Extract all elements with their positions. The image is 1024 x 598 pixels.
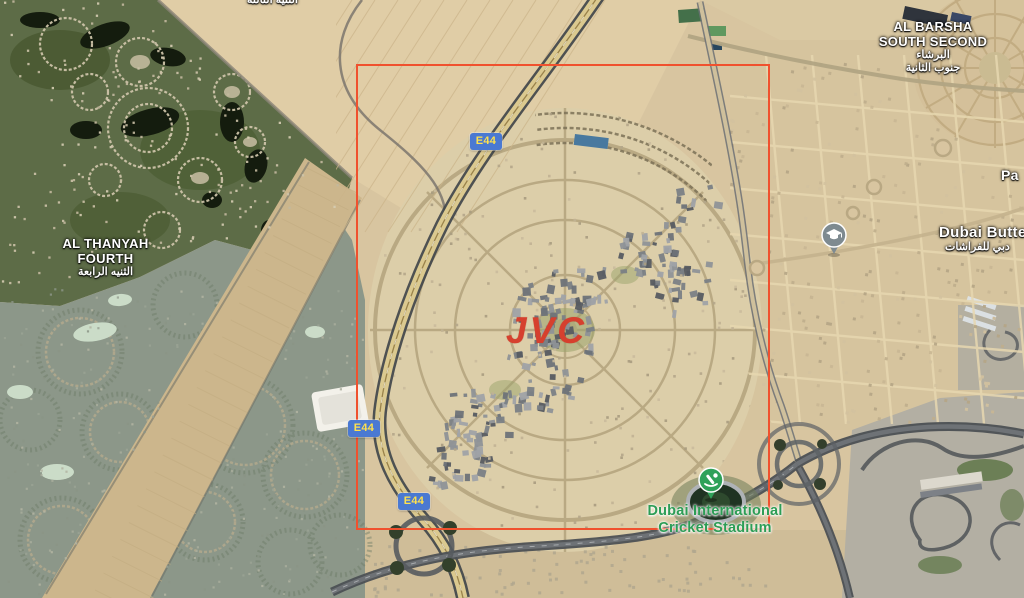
sports-pin-icon [696,466,726,502]
label-dubai-butterfly-garden[interactable]: Dubai Butter [939,224,1024,241]
label-line-arabic: الثنيه الثالثة [225,0,320,7]
label-line-arabic: الثنيه الرابعة [18,266,193,279]
satellite-map-viewport[interactable]: AL BARSHA SOUTH SECOND البرشاء جنوب الثا… [0,0,1024,598]
label-line: SOUTH SECOND [858,34,1008,49]
label-line: FOURTH [18,251,193,266]
label-line: AL BARSHA [858,19,1008,34]
jvc-annotation-text: JVC [506,310,587,352]
jvc-selection-rectangle [356,64,770,530]
label-right-edge-partial: Pa [1001,167,1019,183]
label-line-arabic: جنوب الثانية [858,62,1008,75]
school-pin[interactable] [819,221,849,262]
e44-route-badge: E44 [470,133,502,150]
label-al-barsha-south-second: AL BARSHA SOUTH SECOND البرشاء جنوب الثا… [858,19,1008,75]
label-line: AL THANYAH [18,236,193,251]
e44-route-badge: E44 [348,420,380,437]
cricket-stadium-pin[interactable] [696,466,726,507]
label-line: Cricket Stadium [614,520,816,537]
label-al-thanyah-fourth: AL THANYAH FOURTH الثنيه الرابعة [18,236,193,279]
label-cricket-stadium[interactable]: Dubai International Cricket Stadium [614,503,816,537]
label-line-arabic: البرشاء [858,49,1008,62]
label-dubai-butterfly-garden-arabic: دبي للفراشات [945,240,1010,253]
graduation-cap-icon [819,221,849,257]
e44-route-badge: E44 [398,493,430,510]
label-top-edge-partial: الثنيه الثالثة [225,0,320,7]
